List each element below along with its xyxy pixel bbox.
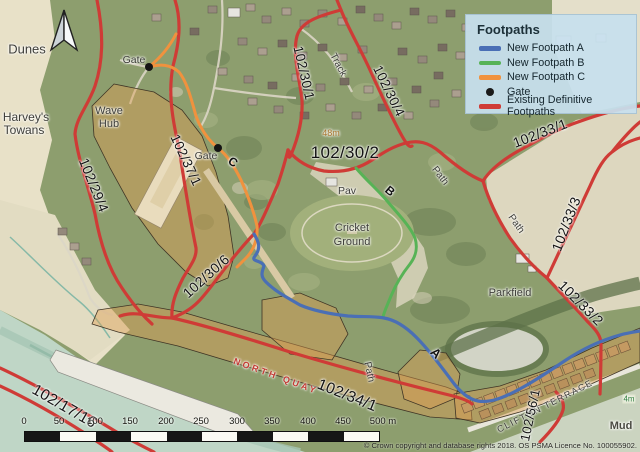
legend-title: Footpaths	[477, 22, 636, 37]
legend-item-label: New Footpath A	[507, 42, 584, 54]
footpath-a-swatch	[479, 46, 501, 51]
scale-tick: 100	[87, 416, 103, 427]
scale-tick: 400	[300, 416, 316, 427]
label-pav: Pav	[338, 185, 356, 197]
label-spot-height-4m: 4m	[622, 395, 635, 404]
label-gate-1: Gate	[123, 54, 146, 66]
attribution-text: © Crown copyright and database rights 20…	[364, 441, 637, 450]
scale-tick: 150	[122, 416, 138, 427]
scale-tick: 200	[158, 416, 174, 427]
existing-footpaths-swatch	[479, 104, 501, 109]
legend-item-label: New Footpath C	[507, 71, 585, 83]
legend: Footpaths New Footpath A New Footpath B …	[465, 14, 637, 114]
label-wave-hub-1: Wave	[95, 105, 123, 117]
label-harveys-towans-1: Harvey's	[3, 110, 49, 124]
label-dunes: Dunes	[8, 42, 46, 57]
label-gate-2: Gate	[195, 150, 218, 162]
footpath-c-swatch	[479, 75, 501, 80]
scale-tick: 250	[193, 416, 209, 427]
gate-dot-icon	[479, 88, 501, 96]
scale-end-label: 500 m	[370, 416, 396, 427]
gate-marker-1	[145, 63, 153, 71]
label-cricket-1: Cricket	[335, 222, 369, 234]
legend-item-label: New Footpath B	[507, 57, 584, 69]
footpath-b-swatch	[479, 61, 501, 66]
legend-item-footpath-a: New Footpath A	[479, 41, 636, 56]
scale-tick: 350	[264, 416, 280, 427]
label-parkfield: Parkfield	[489, 287, 532, 299]
label-harveys-towans-2: Towans	[4, 123, 45, 137]
scale-bar	[24, 431, 380, 442]
legend-item-footpath-c: New Footpath C	[479, 70, 636, 85]
scale-tick: 300	[229, 416, 245, 427]
north-arrow-icon	[46, 6, 82, 54]
label-cricket-2: Ground	[334, 236, 371, 248]
legend-item-existing-footpaths: Existing Definitive Footpaths	[479, 99, 636, 114]
scale-tick: 50	[54, 416, 65, 427]
label-102-30-2: 102/30/2	[311, 143, 380, 163]
scale-tick: 0	[21, 416, 26, 427]
map-canvas: Dunes Harvey's Towans Gate Gate Wave Hub…	[0, 0, 640, 452]
label-spot-height-48m: 48m	[322, 128, 340, 138]
scale-tick: 450	[335, 416, 351, 427]
legend-item-label: Existing Definitive Footpaths	[507, 94, 636, 118]
legend-item-footpath-b: New Footpath B	[479, 56, 636, 71]
label-mud: Mud	[610, 420, 633, 432]
label-wave-hub-2: Hub	[99, 118, 119, 130]
